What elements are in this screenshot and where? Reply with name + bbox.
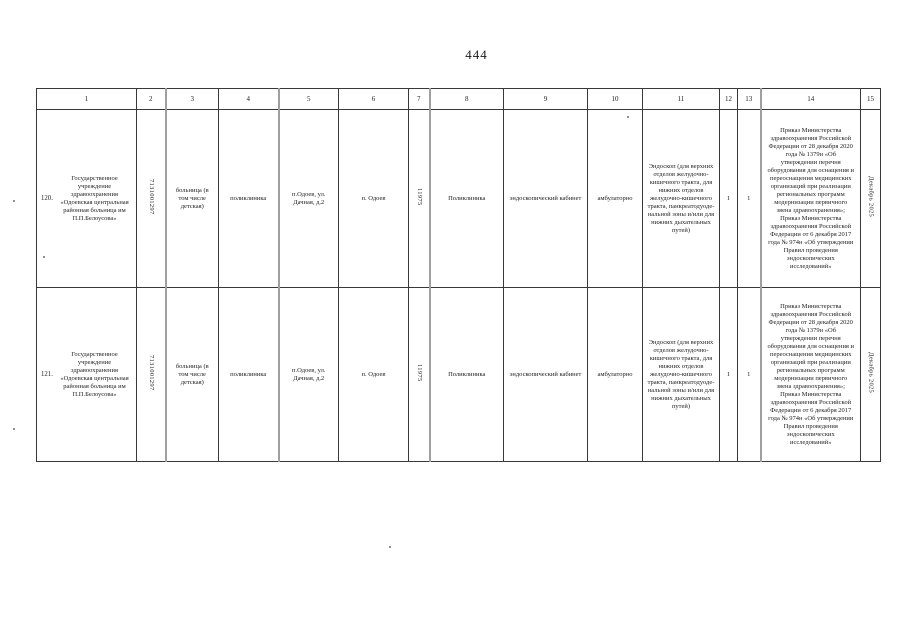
cell-qty-plan: 1 xyxy=(720,288,738,462)
cell-cabinet: эндоскопический кабинет xyxy=(504,288,588,462)
cell-qty-fact: 1 xyxy=(738,288,761,462)
row-number: 120. xyxy=(41,195,53,203)
cell-population: 11975 xyxy=(409,110,430,288)
cell-subdivision: поликлиника xyxy=(219,288,279,462)
inn-vertical-text: 7131001297 xyxy=(147,179,155,215)
column-header: 12 xyxy=(720,89,738,110)
cell-qty-plan: 1 xyxy=(720,110,738,288)
cell-organization: 121. Государственное учреждение здравоох… xyxy=(37,288,137,462)
cell-equipment: Эндоскоп (для верхних отделов желудочно-… xyxy=(643,110,720,288)
table-row: 120. Государственное учреждение здравоох… xyxy=(37,110,881,288)
column-header: 9 xyxy=(504,89,588,110)
column-header: 3 xyxy=(166,89,219,110)
term-vertical-text: Декабрь 2025 xyxy=(867,352,875,393)
cell-settlement: п. Одоев xyxy=(339,288,409,462)
scan-speck xyxy=(13,428,15,430)
cell-facility-type: больница (в том числе детская) xyxy=(166,288,219,462)
scan-speck xyxy=(43,256,45,258)
row-number: 121. xyxy=(41,371,53,379)
cell-organization: 120. Государственное учреждение здравоох… xyxy=(37,110,137,288)
column-header: 11 xyxy=(643,89,720,110)
table-row: 121. Государственное учреждение здравоох… xyxy=(37,288,881,462)
cell-address: п.Одоев, ул. Дачная, д.2 xyxy=(279,110,339,288)
cell-facility-type: больница (в том числе детская) xyxy=(166,110,219,288)
inn-vertical-text: 7131001297 xyxy=(147,355,155,391)
cell-building: Поликлиника xyxy=(430,110,504,288)
scan-speck xyxy=(627,116,629,118)
column-header: 15 xyxy=(861,89,881,110)
column-header: 2 xyxy=(137,89,166,110)
cell-qty-fact: 1 xyxy=(738,110,761,288)
equipment-table: 1 2 3 4 5 6 7 8 9 10 11 12 13 14 15 120.… xyxy=(36,88,881,462)
column-header: 14 xyxy=(761,89,861,110)
column-header: 13 xyxy=(738,89,761,110)
cell-settlement: п. Одоев xyxy=(339,110,409,288)
header-row: 1 2 3 4 5 6 7 8 9 10 11 12 13 14 15 xyxy=(37,89,881,110)
population-vertical-text: 11975 xyxy=(415,364,423,382)
column-header: 1 xyxy=(37,89,137,110)
column-header: 8 xyxy=(430,89,504,110)
column-header: 10 xyxy=(588,89,643,110)
cell-subdivision: поликлиника xyxy=(219,110,279,288)
cell-equipment: Эндоскоп (для верхних отделов желудочно-… xyxy=(643,288,720,462)
term-vertical-text: Декабрь 2025 xyxy=(867,176,875,217)
cell-term: Декабрь 2025 xyxy=(861,110,881,288)
column-header: 4 xyxy=(219,89,279,110)
cell-population: 11975 xyxy=(409,288,430,462)
cell-cabinet: эндоскопический кабинет xyxy=(504,110,588,288)
scan-speck xyxy=(389,546,391,548)
scan-speck xyxy=(13,200,15,202)
cell-inn: 7131001297 xyxy=(137,110,166,288)
cell-building: Поликлиника xyxy=(430,288,504,462)
column-header: 7 xyxy=(409,89,430,110)
population-vertical-text: 11975 xyxy=(415,188,423,206)
cell-legal-basis: Приказ Министерства здравоохранения Росс… xyxy=(761,110,861,288)
cell-inn: 7131001297 xyxy=(137,288,166,462)
cell-address: п.Одоев, ул. Дачная, д.2 xyxy=(279,288,339,462)
organization-name: Государственное учреждение здравоохранен… xyxy=(41,351,132,399)
page-number: 444 xyxy=(0,47,905,63)
column-header: 6 xyxy=(339,89,409,110)
cell-legal-basis: Приказ Министерства здравоохранения Росс… xyxy=(761,288,861,462)
column-header: 5 xyxy=(279,89,339,110)
organization-name: Государственное учреждение здравоохранен… xyxy=(41,175,132,223)
cell-term: Декабрь 2025 xyxy=(861,288,881,462)
cell-care-conditions: амбулаторно xyxy=(588,110,643,288)
cell-care-conditions: амбулаторно xyxy=(588,288,643,462)
